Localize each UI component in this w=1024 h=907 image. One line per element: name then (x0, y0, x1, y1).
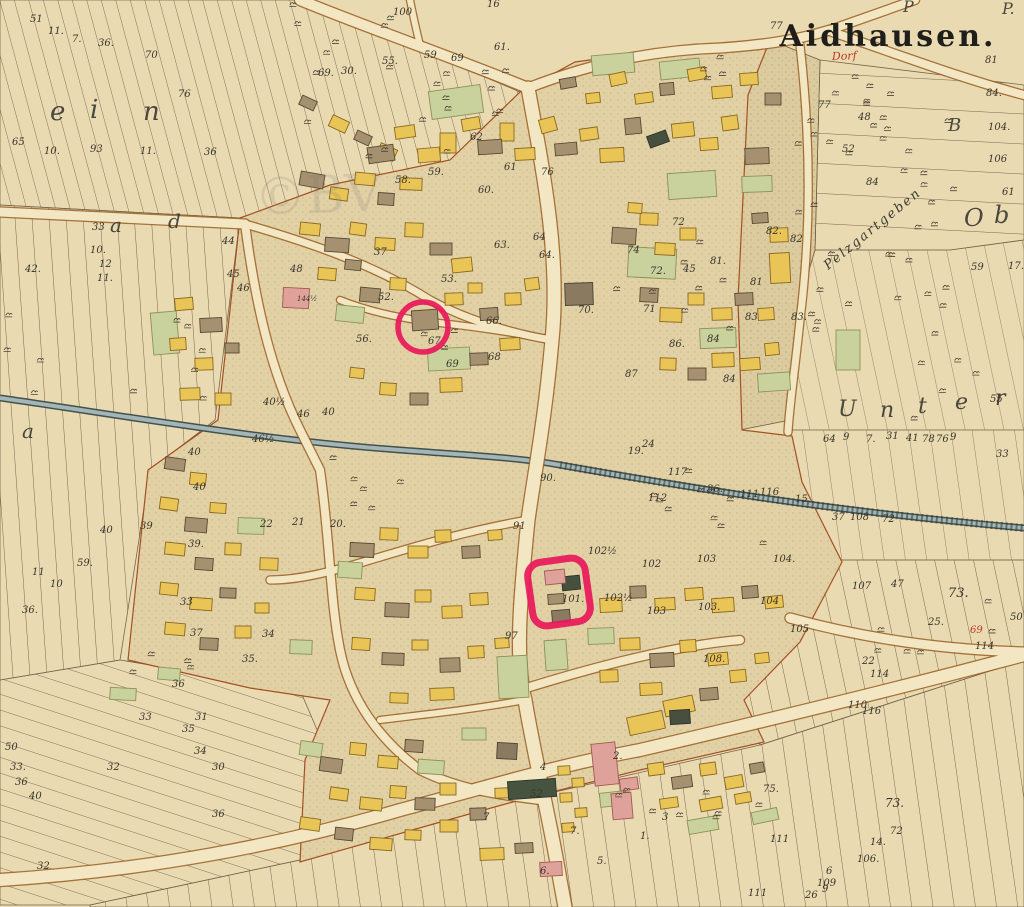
building-footprint (559, 77, 576, 90)
parcel-number: 20. (329, 519, 346, 530)
parcel-number: 44 (221, 236, 235, 247)
parcel-number: 52 (530, 789, 543, 800)
parcel-number: 87 (625, 369, 638, 380)
parcel-number: 110 (848, 700, 868, 711)
building-footprint (687, 67, 707, 82)
village-label-red: Dorf (831, 49, 859, 63)
parcel-number: 111 (748, 888, 767, 899)
building-footprint (699, 762, 717, 776)
building-footprint (405, 223, 423, 238)
parcel-number: 64 (823, 434, 836, 445)
building-footprint (345, 259, 362, 271)
building-footprint (415, 798, 435, 811)
parcel-number: 39. (188, 539, 204, 550)
building-footprint (600, 147, 625, 162)
field-name-letter: e (50, 97, 65, 127)
building-footprint (591, 742, 619, 786)
building-footprint (480, 848, 504, 861)
parcel-number: 105 (790, 624, 809, 635)
parcel-number: 106 (988, 154, 1008, 165)
building-footprint (721, 115, 739, 131)
parcel-number: 102 (642, 559, 661, 570)
building-footprint (165, 622, 186, 636)
parcel-number: 52. (378, 292, 394, 303)
garden-parcel (667, 170, 717, 199)
building-footprint (195, 557, 214, 570)
building-footprint (765, 93, 781, 105)
parcel-number: 36 (212, 809, 225, 820)
parcel-number: 64 (533, 232, 546, 243)
parcel-number: 6 (826, 866, 833, 877)
building-footprint (430, 688, 454, 701)
field-name-letter: P (902, 0, 914, 16)
building-footprint (411, 309, 438, 331)
parcel-number: 72 (672, 217, 685, 228)
building-footprint (769, 252, 791, 283)
parcel-number: 3 (662, 812, 668, 823)
building-footprint (255, 603, 269, 613)
parcel-number: 66. (486, 316, 502, 327)
building-footprint (640, 682, 663, 695)
building-footprint (500, 123, 514, 141)
building-footprint (488, 530, 503, 541)
parcel-number: 84 (866, 177, 879, 188)
parcel-number: 76 (178, 89, 191, 100)
parcel-number: 104 (760, 596, 779, 607)
parcel-number: 14. (870, 837, 886, 848)
building-footprint (688, 368, 706, 380)
parcel-number: 33 (996, 449, 1009, 460)
field-name-letter: U (838, 397, 858, 422)
building-footprint (544, 569, 565, 585)
building-footprint (660, 358, 676, 371)
parcel-number: 59. (428, 167, 444, 178)
parcel-number: 33 (139, 712, 152, 723)
building-footprint (655, 242, 676, 255)
building-footprint (334, 827, 353, 841)
building-footprint (555, 142, 578, 156)
garden-parcel (337, 561, 362, 579)
building-footprint (560, 793, 572, 803)
parcel-number: 9 (843, 432, 850, 443)
parcel-number: 11. (48, 26, 64, 37)
parcel-number: 40 (99, 525, 113, 536)
parcel-number: 62 (470, 132, 483, 143)
parcel-number: 103. (698, 602, 720, 613)
building-footprint (671, 122, 694, 138)
building-footprint (650, 652, 675, 667)
building-footprint (417, 147, 440, 163)
parcel-number: 42. (24, 264, 41, 275)
parcel-number: 84 (723, 374, 736, 385)
parcel-number: 61 (1002, 187, 1015, 198)
parcel-number: 93 (90, 144, 103, 155)
parcel-number: 39 (140, 521, 153, 532)
parcel-number: 22 (259, 519, 273, 530)
building-footprint (380, 382, 397, 395)
parcel-number: 60. (478, 185, 494, 196)
building-footprint (215, 393, 231, 405)
parcel-number: 36 (172, 679, 185, 690)
building-footprint (325, 237, 350, 253)
parcel-number: 12 (99, 259, 112, 270)
parcel-number: 74 (627, 245, 640, 256)
parcel-number: 103 (647, 606, 666, 617)
field-name-letter: a (22, 419, 34, 443)
parcel-number: 7. (866, 434, 876, 445)
building-footprint (410, 393, 428, 405)
building-footprint (318, 267, 337, 281)
garden-parcel (591, 52, 635, 76)
parcel-number: 10. (90, 245, 106, 256)
building-footprint (159, 497, 178, 511)
field-name-letter: n (880, 398, 894, 423)
parcel-number: 104. (773, 554, 795, 565)
garden-parcel (110, 687, 137, 700)
parcel-number: 107 (852, 581, 872, 592)
field-name-letter: O (964, 204, 984, 232)
building-footprint (565, 283, 594, 306)
building-footprint (764, 342, 779, 355)
parcel-number: 30. (341, 66, 357, 77)
parcel-number: 25. (927, 617, 944, 628)
building-footprint (435, 530, 451, 543)
parcel-number: 48 (857, 112, 871, 123)
building-footprint (628, 203, 643, 214)
parcel-number: 111 (740, 489, 759, 500)
building-footprint (611, 227, 636, 245)
parcel-number: 81 (985, 55, 998, 66)
building-footprint (749, 762, 765, 774)
building-footprint (359, 797, 382, 811)
parcel-number: 35. (242, 654, 258, 665)
parcel-number: 30 (212, 762, 225, 773)
garden-parcel (757, 372, 790, 392)
building-footprint (462, 546, 481, 559)
parcel-number: 70. (578, 305, 594, 316)
building-footprint (210, 502, 227, 513)
building-footprint (440, 378, 462, 393)
parcel-number: 1. (640, 831, 650, 842)
garden-parcel (418, 759, 445, 775)
field-name-letter: d (168, 209, 181, 233)
building-footprint (225, 543, 241, 556)
parcel-number: 68 (488, 352, 501, 363)
parcel-number: 33. (10, 762, 26, 773)
field-name-letter: i (90, 95, 98, 125)
building-footprint (329, 787, 348, 801)
map-title: Aidhausen. (779, 19, 997, 54)
building-footprint (190, 597, 213, 611)
parcel-number: 46 (296, 409, 310, 420)
building-footprint (440, 820, 458, 832)
parcel-number: 70 (145, 50, 158, 61)
building-footprint (586, 92, 601, 103)
parcel-number: 65 (12, 137, 25, 148)
building-footprint (470, 353, 488, 366)
building-footprint (440, 658, 460, 673)
parcel-number: 37 (190, 628, 203, 639)
building-footprint (572, 778, 584, 788)
building-footprint (647, 762, 665, 776)
building-footprint (685, 587, 704, 600)
building-footprint (260, 558, 278, 571)
building-footprint (235, 626, 251, 638)
parcel-number: 63. (494, 240, 510, 251)
garden-parcel (290, 640, 312, 655)
parcel-number: 9 (950, 432, 957, 443)
building-footprint (385, 603, 409, 618)
building-footprint (442, 606, 462, 619)
parcel-number: 81. (710, 256, 726, 267)
building-footprint (500, 337, 521, 350)
parcel-number: 59. (77, 558, 93, 569)
parcel-number: 104. (988, 122, 1010, 133)
parcel-number: 84 (707, 334, 720, 345)
parcel-number: 61. (494, 42, 510, 53)
building-footprint (394, 125, 415, 140)
parcel-number: 46 (236, 283, 250, 294)
parcel-number: 72 (882, 514, 895, 525)
parcel-number: 117 (668, 467, 688, 478)
building-footprint (495, 788, 509, 798)
parcel-number: 17. (1008, 261, 1024, 272)
building-footprint (430, 243, 452, 255)
parcel-number: 33 (92, 222, 105, 233)
building-footprint (745, 148, 770, 165)
building-footprint (184, 517, 207, 533)
parcel-number: 50 (5, 742, 18, 753)
building-footprint (225, 343, 239, 353)
building-footprint (659, 797, 678, 809)
parcel-number: 108 (850, 512, 869, 523)
parcel-number: 40 (28, 791, 42, 802)
building-footprint (515, 147, 536, 160)
building-footprint (445, 293, 463, 306)
historical-map-canvas[interactable]: einadaUnterObBPP. 5111.7.36.70766510.931… (0, 0, 1024, 907)
copyright-watermark: ©BV (253, 164, 384, 228)
field-name-letter: e (955, 390, 968, 415)
building-footprint (724, 775, 744, 790)
building-footprint (159, 582, 178, 596)
parcel-number: 114 (870, 669, 889, 680)
building-footprint (640, 288, 659, 303)
building-footprint (620, 638, 640, 651)
parcel-number: 64. (539, 250, 555, 261)
garden-parcel (544, 639, 568, 670)
building-footprint (352, 637, 371, 650)
building-footprint (515, 843, 533, 854)
building-footprint (670, 709, 691, 724)
parcel-number: 76 (936, 434, 949, 445)
parcel-number: 10 (50, 579, 63, 590)
garden-parcel (299, 741, 323, 758)
parcel-number: 4 (539, 762, 546, 773)
parcel-number: 72. (650, 266, 666, 277)
garden-parcel (742, 175, 773, 192)
parcel-number: 37 (832, 512, 845, 523)
building-footprint (758, 307, 775, 320)
parcel-number: 102½ (588, 546, 617, 557)
building-footprint (742, 585, 759, 598)
parcel-number: 32 (107, 762, 120, 773)
parcel-number: 73. (948, 586, 969, 601)
parcel-number: 86. (669, 339, 685, 350)
building-footprint (390, 785, 407, 798)
building-footprint (558, 766, 570, 776)
parcel-number: 21 (291, 517, 305, 528)
parcel-number: 52 (842, 144, 855, 155)
building-footprint (524, 277, 540, 291)
parcel-number: 71 (643, 304, 656, 315)
building-footprint (299, 817, 320, 832)
parcel-number: 59 (971, 262, 984, 273)
garden-parcel (462, 728, 486, 740)
building-footprint (671, 775, 692, 790)
parcel-number: 15 (795, 494, 808, 505)
parcel-number: 53. (441, 274, 457, 285)
parcel-number: 69 (451, 53, 464, 64)
building-footprint (170, 337, 187, 350)
parcel-number: 81 (750, 277, 763, 288)
building-footprint (405, 830, 421, 841)
parcel-number: 91 (513, 521, 526, 532)
building-footprint (634, 92, 653, 104)
parcel-number: 108. (703, 654, 725, 665)
parcel-number: 5. (597, 856, 607, 867)
building-footprint (740, 357, 761, 370)
building-footprint (180, 388, 200, 401)
building-footprint (752, 212, 769, 223)
building-footprint (164, 542, 185, 556)
building-footprint (405, 739, 424, 752)
parcel-number: 55. (382, 56, 398, 67)
parcel-number: 16 (487, 0, 500, 10)
parcel-number: 2. (612, 751, 623, 762)
building-footprint (440, 783, 456, 795)
parcel-number: 69 (970, 625, 983, 636)
building-footprint (350, 367, 365, 378)
building-footprint (350, 542, 375, 557)
building-footprint (700, 687, 719, 701)
building-footprint (470, 593, 489, 606)
building-footprint (220, 588, 236, 599)
parcel-number: 40 (192, 482, 206, 493)
building-footprint (740, 72, 759, 85)
building-footprint (734, 792, 751, 805)
field-name-letter: a (110, 213, 122, 237)
building-footprint (575, 808, 588, 818)
parcel-number: 72 (890, 826, 903, 837)
parcel-number: 7. (72, 34, 82, 45)
parcel-number: 114 (975, 641, 994, 652)
parcel-number: 10. (44, 146, 60, 157)
building-footprint (712, 308, 732, 321)
building-footprint (378, 755, 399, 769)
parcel-number: 11 (32, 567, 45, 578)
building-footprint (468, 283, 482, 293)
parcel-number: 34 (262, 629, 275, 640)
parcel-number: 36 (15, 777, 28, 788)
field-name-letter: b (994, 201, 1009, 229)
parcel-number: 73. (885, 796, 904, 810)
parcel-number: 47 (890, 579, 904, 590)
building-footprint (382, 653, 404, 666)
field-name-letter: P. (1001, 0, 1015, 18)
parcel-number: 48 (289, 264, 303, 275)
parcel-number: 97 (505, 631, 518, 642)
parcel-number: 32 (37, 861, 50, 872)
building-footprint (200, 317, 223, 332)
garden-parcel (497, 655, 529, 699)
parcel-number: 77 (818, 100, 831, 111)
building-footprint (712, 353, 734, 368)
building-footprint (408, 546, 428, 558)
parcel-number: 83 (745, 312, 758, 323)
building-footprint (505, 293, 521, 306)
parcel-number: 75. (763, 784, 779, 795)
field-name-letter: B (947, 115, 961, 136)
building-footprint (712, 85, 733, 99)
building-footprint (349, 742, 366, 756)
building-footprint (579, 127, 598, 141)
parcel-number: 101. (562, 594, 584, 605)
parcel-number: 82 (790, 234, 803, 245)
parcel-number: 144½ (297, 295, 317, 303)
field-name-letter: n (143, 97, 160, 127)
parcel-number: 11. (97, 273, 113, 284)
parcel-number: 82. (766, 226, 782, 237)
parcel-number: 69. (318, 68, 334, 79)
building-footprint (164, 457, 185, 472)
building-footprint (660, 82, 675, 95)
building-footprint (461, 117, 481, 132)
parcel-number: 36. (707, 484, 723, 495)
parcel-number: 36. (22, 605, 38, 616)
parcel-number: 45 (682, 264, 696, 275)
building-footprint (380, 528, 398, 541)
building-footprint (451, 257, 472, 273)
building-footprint (370, 837, 393, 851)
parcel-number: 59 (424, 50, 437, 61)
parcel-number: 102½ (604, 593, 633, 604)
building-footprint (755, 652, 770, 663)
building-footprint (640, 213, 658, 226)
parcel-number: 36 (204, 147, 217, 158)
parcel-number: 46½ (251, 434, 274, 445)
building-footprint (412, 640, 428, 650)
parcel-number: 111 (770, 834, 789, 845)
building-footprint (688, 293, 704, 305)
building-footprint (735, 293, 754, 306)
parcel-number: 6. (540, 866, 550, 877)
parcel-number: 90. (540, 473, 556, 484)
building-footprint (680, 639, 697, 652)
field-name-letter: t (918, 394, 927, 419)
parcel-number: 35 (182, 724, 195, 735)
building-footprint (497, 742, 518, 759)
parcel-number: 78 (922, 434, 935, 445)
building-footprint (319, 757, 343, 774)
garden-parcel (588, 628, 615, 645)
parcel-number: 11. (140, 146, 156, 157)
parcel-number: 84. (986, 88, 1002, 99)
parcel-number: 40 (321, 407, 335, 418)
garden-parcel (335, 305, 365, 324)
building-footprint (355, 587, 376, 600)
parcel-number: 56. (356, 334, 372, 345)
building-footprint (175, 297, 194, 311)
